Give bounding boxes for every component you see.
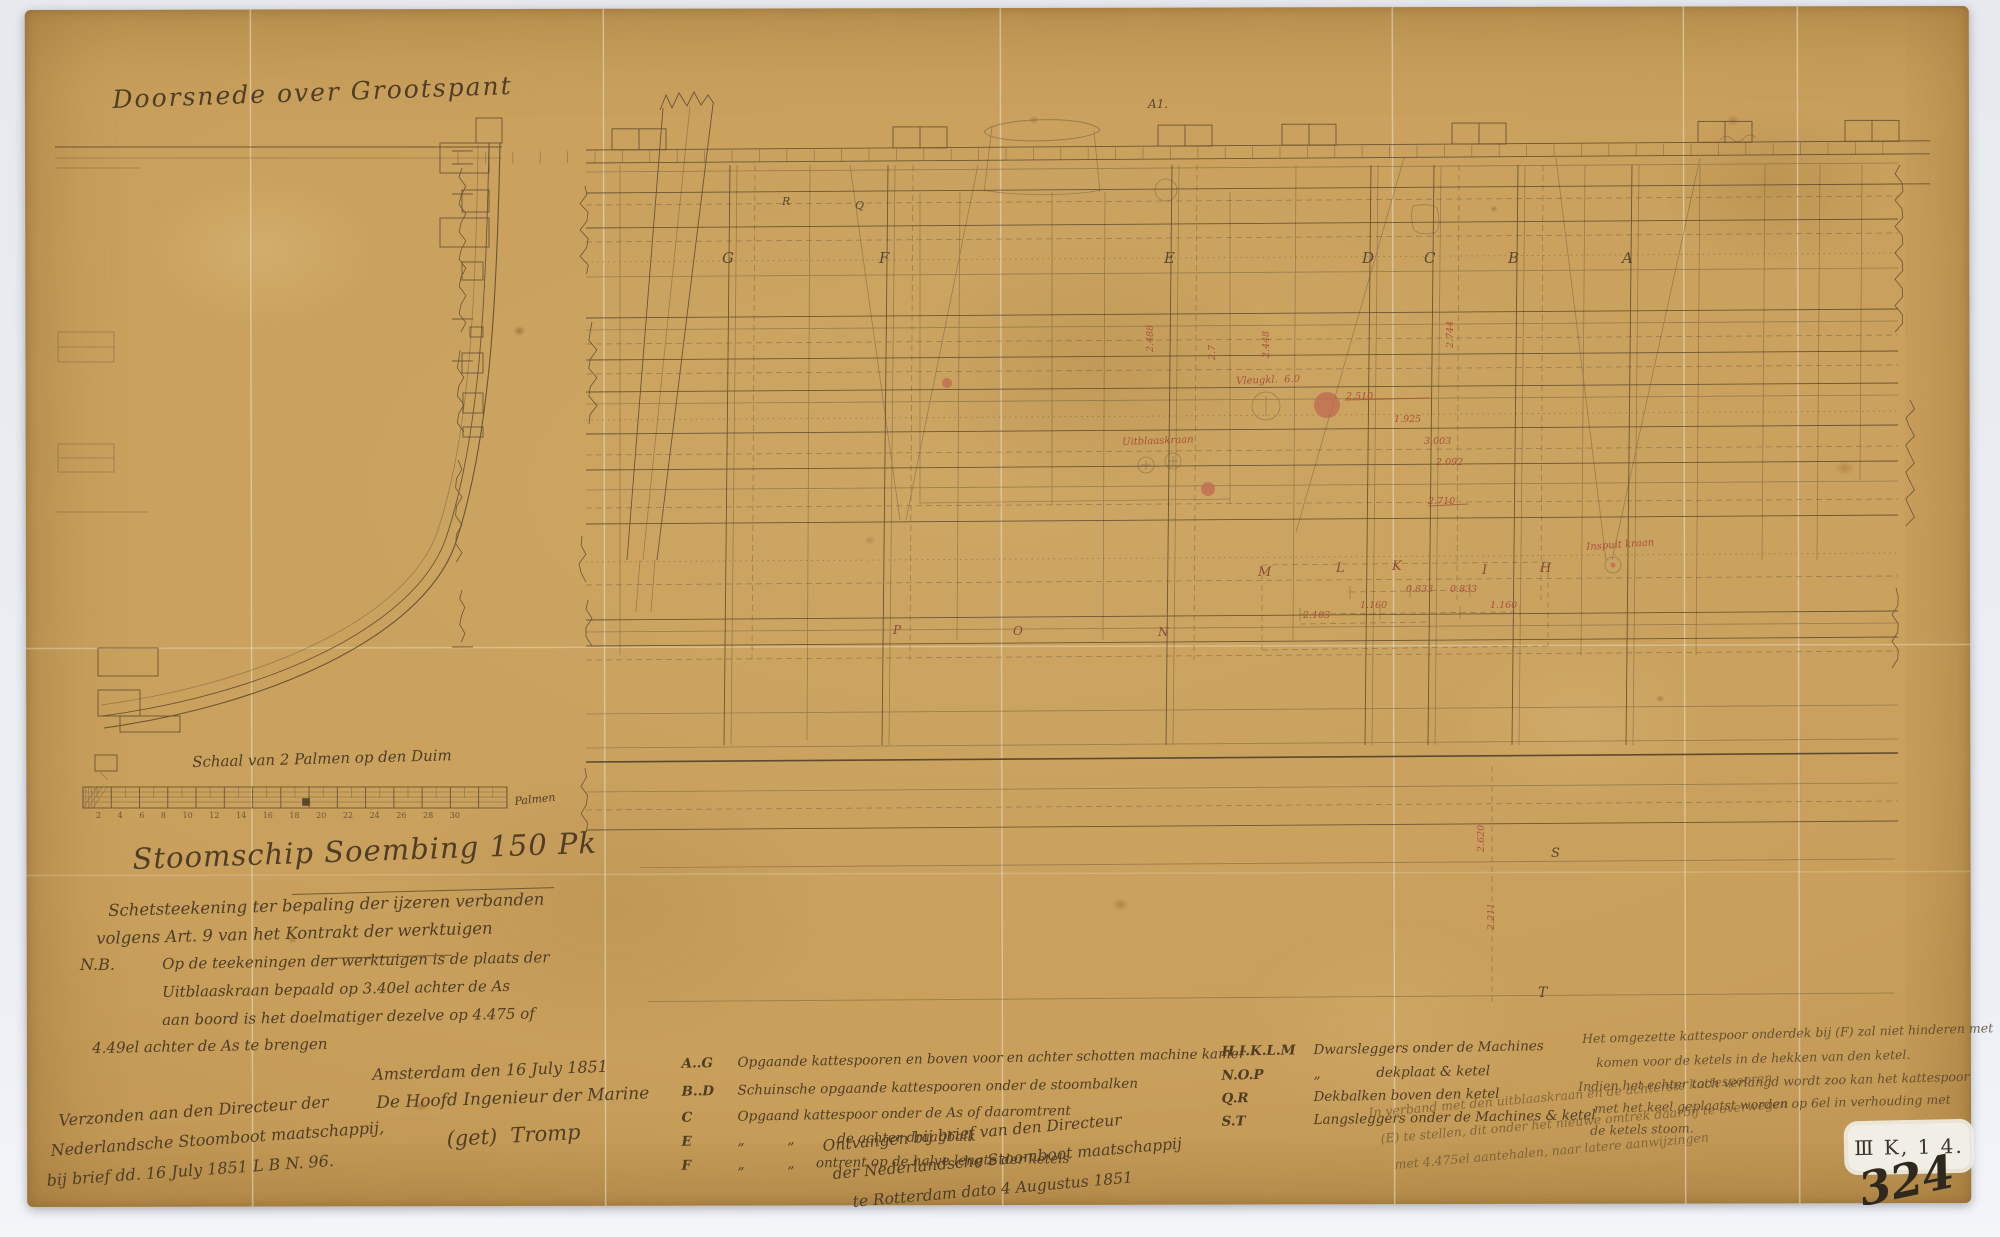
deck-letter-Q: Q <box>855 200 864 212</box>
dimension-vertical: 2.448 <box>1262 331 1272 358</box>
frame-letter-D: D <box>1362 250 1374 267</box>
legger-letter-L: L <box>1336 562 1345 576</box>
legger-letter-H: H <box>1540 562 1551 576</box>
nb-label: N.B. <box>80 956 115 974</box>
sheet-mark: A1. <box>1148 98 1168 111</box>
legger-letter-I: I <box>1482 564 1487 578</box>
frame-letter-E: E <box>1164 250 1175 267</box>
dimension-vertical: 2.211 <box>1487 903 1497 930</box>
dimension-vertical: 2.744 <box>1446 321 1456 348</box>
dimension: 1.925 <box>1394 415 1421 425</box>
dimension: 3.003 <box>1424 437 1451 447</box>
deck-letter-R: R <box>782 196 790 208</box>
dimension: 0.833 <box>1406 585 1433 595</box>
scanned-drawing-page: Doorsnede over Grootspant Schaal van 2 P… <box>0 0 2000 1237</box>
side-letter-S: S <box>1551 847 1560 861</box>
legend-key: S.T <box>1221 1113 1313 1129</box>
valve-label: Vleugkl. 6.0 <box>1236 374 1300 387</box>
bottom-letter-N: N <box>1158 626 1169 639</box>
legend-key: F <box>681 1158 737 1174</box>
dimension: 0.833 <box>1450 585 1477 595</box>
nb-line: 4.49el achter de As te brengen <box>92 1036 328 1057</box>
side-letter-T: T <box>1538 986 1547 1001</box>
frame-letter-C: C <box>1424 250 1435 267</box>
dimension: 2.092 <box>1436 458 1463 468</box>
dimension-vertical: 2.488 <box>1146 325 1156 352</box>
legger-letter-M: M <box>1258 566 1271 580</box>
frame-letter-G: G <box>722 250 734 267</box>
frame-letter-B: B <box>1508 250 1519 267</box>
frame-letter-A: A <box>1622 250 1633 267</box>
dimension-vertical: 2.620 <box>1477 825 1487 852</box>
dimension: 1.160 <box>1490 601 1517 611</box>
bottom-letter-P: P <box>893 624 901 637</box>
dimension: 2.103 <box>1303 611 1330 621</box>
dimension: 2.710 <box>1428 497 1455 507</box>
dimension: 2.510 <box>1346 392 1373 402</box>
dimension-vertical: 2.7 <box>1208 345 1218 360</box>
frame-letter-F: F <box>879 250 889 267</box>
dimension: 1.160 <box>1360 601 1387 611</box>
legger-letter-K: K <box>1392 560 1402 574</box>
scale-tick-numbers: 2 4 6 8 10 12 14 16 18 20 22 24 26 28 30 <box>96 812 460 821</box>
bottom-letter-O: O <box>1013 625 1023 638</box>
